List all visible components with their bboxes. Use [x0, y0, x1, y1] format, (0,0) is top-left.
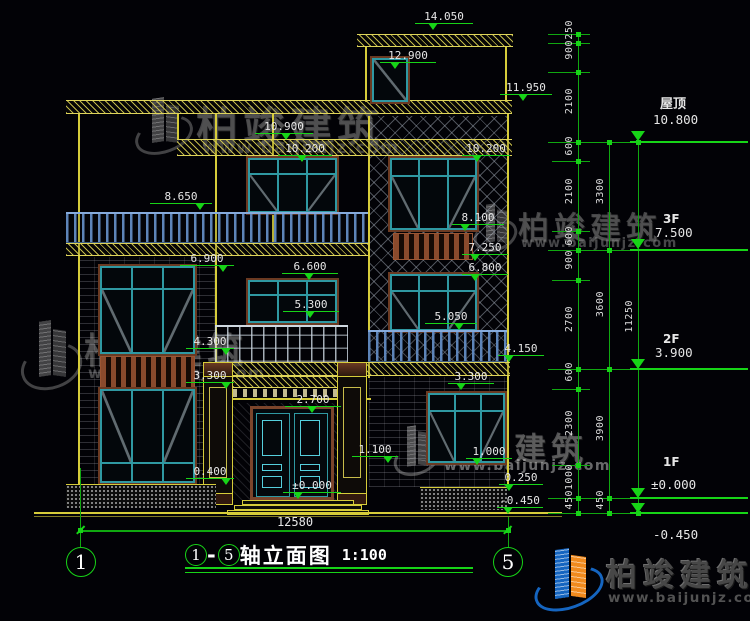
window-3f-center [248, 158, 337, 213]
dim-text: 2300 [564, 410, 575, 436]
cad-elevation-drawing: 柏竣建筑 www.baijunjz.com 柏竣建筑 www.baijunjz.… [0, 0, 750, 621]
window-left-lower [100, 389, 195, 483]
dim-text: 2100 [564, 88, 575, 114]
elevation-marker: 6.900 [180, 253, 234, 266]
dim-text: 450 [595, 490, 606, 510]
elevation-marker: 10.200 [278, 143, 332, 156]
elevation-marker: 0.400 [186, 466, 234, 479]
plinth-left [66, 484, 216, 508]
pilaster-right [337, 362, 367, 505]
drawing-title: 1-5轴立面图1:100 [185, 540, 485, 570]
level-value-ground: -0.450 [653, 527, 698, 542]
elevation-marker: 3.300 [448, 371, 494, 384]
level-label-2f: 2F [663, 332, 680, 346]
level-label-3f: 3F [663, 212, 680, 226]
dim-text: 3600 [595, 291, 606, 317]
dim-text: 2100 [564, 178, 575, 204]
level-label-1f: 1F [663, 455, 680, 469]
elevation-marker: 10.200 [462, 143, 510, 156]
dim-text: 2700 [564, 306, 575, 332]
elevation-marker: 4.300 [186, 336, 234, 349]
plinth-right [420, 487, 507, 510]
wall-line [78, 114, 80, 486]
overall-dim-line [81, 530, 509, 532]
axis-line-1 [80, 468, 81, 547]
wall-line [177, 114, 179, 140]
window-left-upper [100, 266, 195, 354]
dim-text: 900 [564, 40, 575, 60]
dim-text: 900 [564, 250, 575, 270]
elevation-marker: 7.250 [462, 242, 508, 255]
title-dash: - [207, 543, 218, 567]
elevation-marker: ±0.000 [283, 480, 341, 493]
dim-chain-outer [638, 142, 639, 513]
company-logo-url: www.baijunjz.com [608, 590, 750, 606]
louver-band-left [100, 356, 195, 389]
dim-text: 450 [564, 490, 575, 510]
elevation-marker: 8.650 [150, 191, 212, 204]
dim-text: 11250 [624, 300, 635, 333]
dim-text: 600 [564, 226, 575, 246]
title-bubble-start: 1 [185, 544, 207, 566]
elevation-marker: 6.600 [282, 261, 338, 274]
elevation-marker: 1.000 [466, 446, 512, 459]
wall-line [507, 114, 509, 488]
level-value-2f: 3.900 [655, 345, 693, 360]
ground-line [34, 512, 562, 514]
elevation-marker: 14.050 [415, 11, 473, 24]
axis-bubble-1: 1 [66, 547, 96, 577]
level-value-3f: 7.500 [655, 225, 693, 240]
penthouse-roof-slab [357, 34, 513, 47]
elevation-marker: 12.900 [380, 50, 436, 63]
title-bubble-end: 5 [218, 544, 240, 566]
elevation-marker: 0.250 [499, 472, 543, 485]
penthouse-wall [365, 46, 367, 102]
company-logo-icon [538, 546, 602, 610]
dim-text: 250 [564, 20, 575, 40]
title-underline-2 [185, 572, 473, 573]
axis-bubble-5: 5 [493, 547, 523, 577]
title-scale: 1:100 [342, 546, 387, 564]
elevation-marker: 6.800 [462, 262, 508, 275]
dim-text: 600 [564, 362, 575, 382]
overall-width-dim: 12580 [262, 515, 328, 529]
dim-text: 3900 [595, 415, 606, 441]
elevation-marker: -0.450 [497, 495, 543, 508]
company-logo-text: 柏竣建筑 [606, 550, 750, 595]
dim-text: 3300 [595, 178, 606, 204]
balcony-railing-3f [66, 212, 368, 243]
elevation-marker: 3.300 [186, 370, 234, 383]
title-underline [185, 567, 473, 569]
louver-band-right [393, 233, 473, 260]
level-label-roof: 屋顶 [660, 93, 686, 112]
elevation-marker: 5.050 [425, 311, 477, 324]
dim-text: 1000 [564, 464, 575, 490]
elevation-marker: 8.100 [452, 212, 504, 225]
level-value-roof: 10.800 [653, 112, 698, 127]
main-roof-slab [66, 100, 512, 114]
elevation-marker: 2.700 [285, 394, 341, 407]
elevation-marker: 1.100 [352, 444, 398, 457]
elevation-marker: 4.150 [498, 343, 544, 356]
balcony-railing-2f-right [368, 330, 507, 362]
watermark-logo-icon [24, 318, 80, 390]
elevation-marker: 11.950 [500, 82, 552, 95]
elevation-marker: 5.300 [283, 299, 339, 312]
level-value-1f: ±0.000 [651, 477, 696, 492]
elevation-marker: 10.900 [255, 121, 313, 134]
title-text: 轴立面图 [240, 544, 332, 568]
balcony-railing-2f-center [215, 325, 348, 362]
dim-chain-inner [578, 34, 579, 513]
dim-chain-middle [609, 142, 610, 513]
dim-text: 600 [564, 136, 575, 156]
